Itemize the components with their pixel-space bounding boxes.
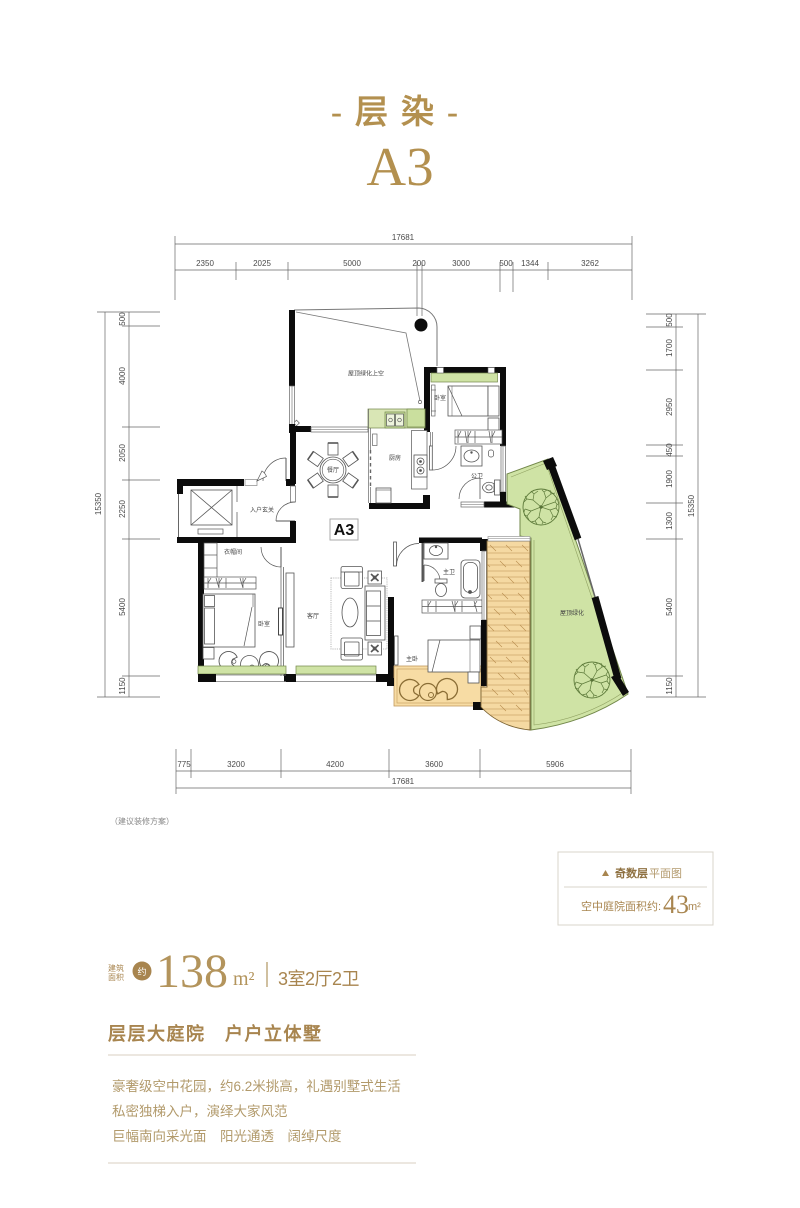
- svg-text:138: 138: [156, 945, 228, 998]
- svg-text:1900: 1900: [665, 470, 674, 488]
- svg-text:空中庭院面积约:: 空中庭院面积约:: [581, 899, 661, 913]
- svg-text:A3: A3: [366, 136, 433, 197]
- svg-text:主卧: 主卧: [406, 655, 418, 663]
- svg-text:500: 500: [499, 259, 513, 268]
- svg-text:层层大庭院 户户立体墅: 层层大庭院 户户立体墅: [108, 1023, 323, 1044]
- svg-text:客厅: 客厅: [307, 612, 319, 620]
- svg-text:3262: 3262: [581, 259, 599, 268]
- svg-text:巨幅南向采光面 阳光通透 阔绰尺度: 巨幅南向采光面 阳光通透 阔绰尺度: [112, 1129, 342, 1144]
- svg-text:餐厅: 餐厅: [327, 466, 339, 474]
- svg-text:卧室: 卧室: [258, 620, 270, 628]
- svg-text:屋顶绿化: 屋顶绿化: [560, 609, 584, 617]
- svg-text:平面图: 平面图: [649, 867, 682, 880]
- svg-text:3200: 3200: [227, 760, 245, 769]
- svg-text:1344: 1344: [521, 259, 539, 268]
- svg-text:私密独梯入户，演绎大家风范: 私密独梯入户，演绎大家风范: [112, 1103, 288, 1119]
- svg-text:3室2厅2卫: 3室2厅2卫: [278, 969, 360, 989]
- svg-text:17681: 17681: [392, 777, 415, 786]
- svg-text:入户玄关: 入户玄关: [250, 506, 274, 514]
- svg-text:4000: 4000: [118, 367, 127, 385]
- svg-text:1150: 1150: [118, 677, 127, 695]
- svg-text:500: 500: [118, 312, 127, 326]
- svg-text:m²: m²: [688, 901, 701, 913]
- svg-text:5400: 5400: [118, 598, 127, 616]
- svg-text:2950: 2950: [665, 398, 674, 416]
- svg-text:2350: 2350: [196, 259, 214, 268]
- svg-text:屋顶绿化上空: 屋顶绿化上空: [348, 370, 384, 378]
- svg-text:2250: 2250: [118, 500, 127, 518]
- svg-text:775: 775: [177, 760, 191, 769]
- svg-text:4200: 4200: [326, 760, 344, 769]
- svg-text:厨房: 厨房: [389, 454, 401, 462]
- svg-text:衣帽间: 衣帽间: [224, 548, 242, 556]
- svg-text:1150: 1150: [665, 677, 674, 695]
- svg-text:约: 约: [137, 966, 146, 977]
- svg-text:3600: 3600: [425, 760, 443, 769]
- svg-text:1700: 1700: [665, 339, 674, 357]
- svg-text:-层染-: -层染-: [331, 94, 471, 131]
- svg-text:17681: 17681: [392, 233, 415, 242]
- svg-text:卧室: 卧室: [434, 394, 446, 402]
- svg-text:200: 200: [412, 259, 426, 268]
- svg-text:500: 500: [665, 313, 674, 327]
- svg-text:面积: 面积: [108, 972, 124, 982]
- svg-text:主卫: 主卫: [443, 568, 455, 576]
- svg-text:43: 43: [663, 890, 689, 919]
- svg-text:奇数层: 奇数层: [615, 866, 648, 880]
- svg-text:（建议装修方案）: （建议装修方案）: [110, 816, 174, 826]
- svg-text:5906: 5906: [546, 760, 564, 769]
- svg-text:公卫: 公卫: [471, 473, 483, 480]
- svg-text:15350: 15350: [687, 494, 696, 517]
- svg-text:A3: A3: [334, 522, 355, 539]
- svg-text:1300: 1300: [665, 512, 674, 530]
- svg-text:2025: 2025: [253, 259, 271, 268]
- svg-text:m²: m²: [233, 968, 255, 990]
- svg-text:450: 450: [665, 443, 674, 457]
- svg-text:建筑: 建筑: [108, 963, 124, 973]
- svg-text:3000: 3000: [452, 259, 470, 268]
- svg-text:15350: 15350: [94, 492, 103, 515]
- svg-text:豪奢级空中花园，约6.2米挑高，礼遇别墅式生活: 豪奢级空中花园，约6.2米挑高，礼遇别墅式生活: [112, 1078, 401, 1094]
- svg-text:5400: 5400: [665, 598, 674, 616]
- svg-text:5000: 5000: [343, 259, 361, 268]
- svg-text:2050: 2050: [118, 444, 127, 462]
